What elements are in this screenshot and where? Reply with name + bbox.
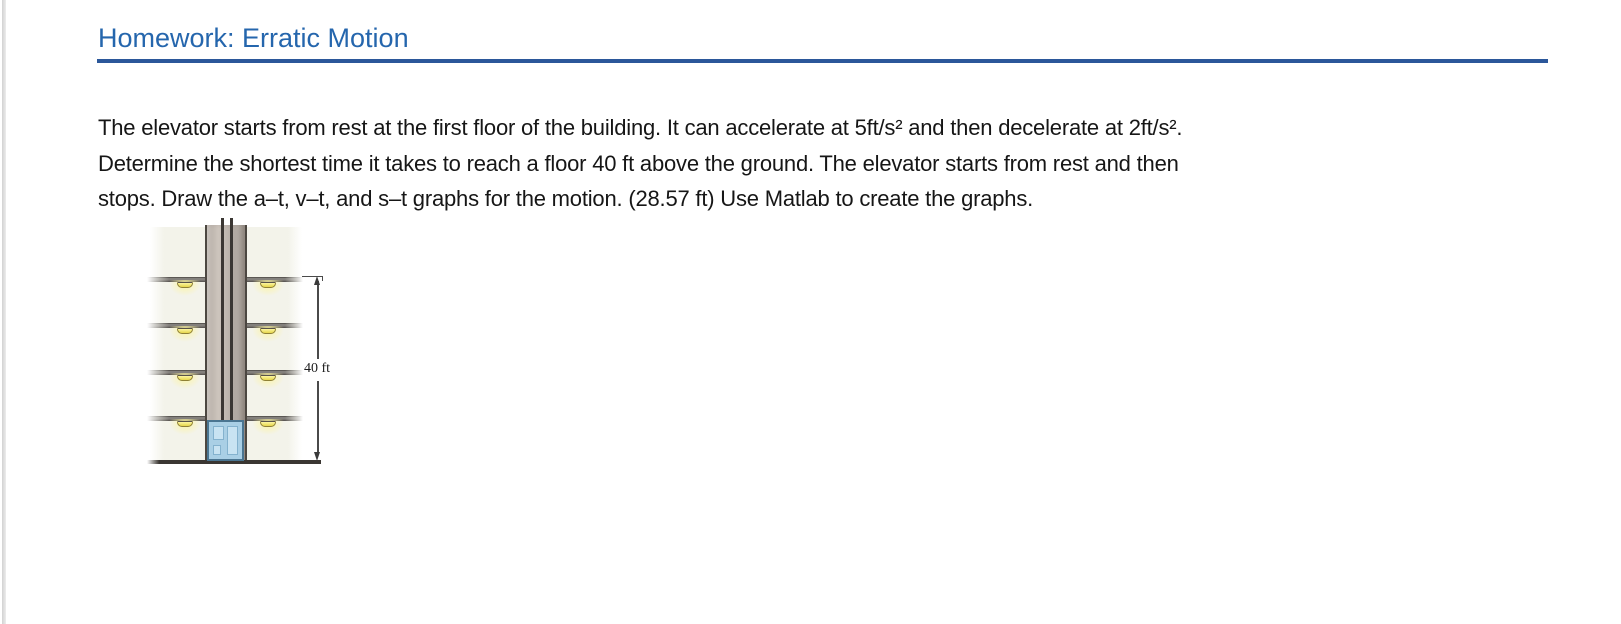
problem-text-line-1: The elevator starts from rest at the fir… bbox=[98, 110, 1182, 146]
hoist-cable-icon bbox=[221, 218, 224, 422]
hoist-cable-icon bbox=[230, 218, 233, 422]
problem-text-line-2: Determine the shortest time it takes to … bbox=[98, 146, 1182, 182]
light-bulb bbox=[177, 328, 193, 334]
elevator-door-panel bbox=[213, 426, 224, 440]
light-bulb bbox=[260, 328, 276, 334]
ceiling-light-icon bbox=[175, 374, 195, 389]
ceiling-light-icon bbox=[175, 420, 195, 435]
elevator-door-panel bbox=[227, 426, 238, 455]
problem-text: The elevator starts from rest at the fir… bbox=[98, 110, 1182, 217]
ceiling-light-icon bbox=[175, 327, 195, 342]
ceiling-light-icon bbox=[258, 420, 278, 435]
light-bulb bbox=[177, 421, 193, 427]
dimension-arrow-down-icon bbox=[314, 452, 320, 461]
dimension-line-lower bbox=[317, 381, 319, 455]
light-bulb bbox=[260, 282, 276, 288]
ceiling-light-icon bbox=[175, 281, 195, 296]
dimension-arrow-up-icon bbox=[314, 276, 320, 285]
title-underline bbox=[97, 59, 1548, 63]
problem-text-line-3: stops. Draw the a–t, v–t, and s–t graphs… bbox=[98, 181, 1182, 217]
light-bulb bbox=[260, 421, 276, 427]
page-title: Homework: Erratic Motion bbox=[98, 22, 409, 54]
ceiling-light-icon bbox=[258, 281, 278, 296]
dimension-line-upper bbox=[317, 281, 319, 359]
light-bulb bbox=[260, 375, 276, 381]
elevator-car bbox=[207, 420, 244, 461]
dimension-label: 40 ft bbox=[294, 361, 340, 377]
dimension-extension-tick bbox=[322, 276, 323, 281]
elevator-door-panel bbox=[213, 445, 221, 455]
ceiling-light-icon bbox=[258, 374, 278, 389]
elevator-figure: 40 ft bbox=[145, 215, 345, 475]
page-left-edge bbox=[2, 0, 6, 624]
light-bulb bbox=[177, 282, 193, 288]
ceiling-light-icon bbox=[258, 327, 278, 342]
light-bulb bbox=[177, 375, 193, 381]
